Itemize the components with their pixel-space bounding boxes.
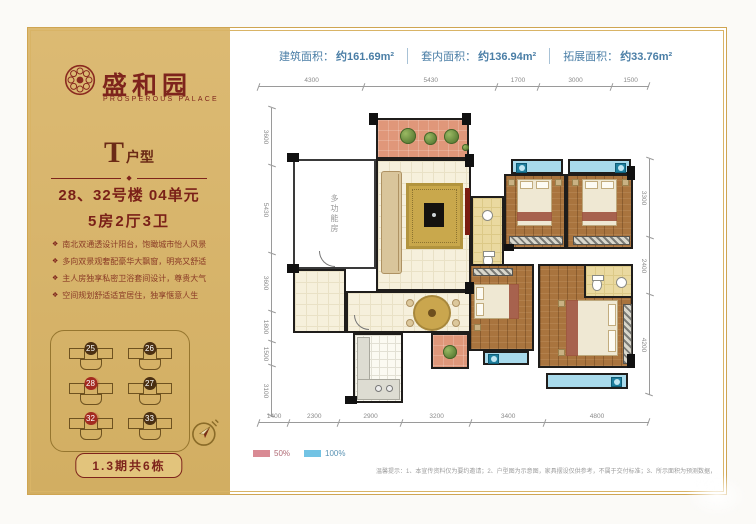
dimension-segment: 3400 [471, 422, 545, 428]
disclaimer-text: 温馨提示：1、本宣传资料仅为要约邀请；2、户型图为示意图，家具摆设仅供参考，不属… [376, 466, 714, 475]
balcony-master [546, 373, 628, 389]
floor-plan: 多功能房 [257, 96, 649, 428]
building-number-badge: 26 [143, 342, 156, 355]
legend-swatch [253, 450, 270, 457]
compass-icon [190, 418, 220, 448]
feature-text: 主人房独享私密卫浴套间设计，尊贵大气 [62, 274, 206, 284]
feature-item: ❖ 南北双通透设计阳台，饱瞰城市怡人风景 [52, 240, 212, 250]
dimension-segment: 4800 [545, 422, 649, 428]
dimension-segment: 1500 [612, 86, 649, 92]
dimension-label: 4200 [640, 338, 647, 352]
diamond-bullet-icon: ❖ [52, 240, 58, 250]
dimension-segment: 2400 [649, 238, 655, 295]
brand-name-en: PROSPEROUS PALACE [103, 96, 219, 103]
unit-type-letter: T [104, 136, 124, 169]
feature-text: 空间规划舒适适宜居住，独享惬意人生 [62, 291, 198, 301]
area-segment: 建筑面积：约161.69m² [266, 48, 407, 64]
legend-item: 100% [304, 449, 345, 458]
dimension-label: 5430 [424, 77, 438, 84]
building-wing-right [97, 418, 113, 429]
site-building[interactable]: 32 [68, 412, 114, 440]
area-value: 约136.94m² [478, 51, 536, 63]
building-number-badge: 33 [143, 412, 156, 425]
balcony-bedroom2 [568, 159, 631, 174]
area-value: 约33.76m² [620, 51, 672, 63]
dimension-segment: 3600 [271, 108, 277, 166]
dimension-segment: 1500 [271, 342, 277, 366]
building-base [80, 394, 102, 405]
area-label: 套内面积： [421, 51, 476, 63]
feature-item: ❖ 多向双景观奢配豪华大飘窗，明亮又舒适 [52, 257, 212, 267]
terrace-garden [376, 118, 469, 159]
site-building[interactable]: 33 [127, 412, 173, 440]
phase-badge-button[interactable]: 1.3期共6栋 [75, 453, 182, 478]
building-number-badge: 32 [84, 412, 97, 425]
dimension-segment: 2900 [339, 422, 402, 428]
building-base [139, 359, 161, 370]
site-plan-map: 25 26 28 [50, 330, 190, 452]
unit-type-suffix: 户型 [126, 149, 154, 165]
dimension-segment: 2300 [289, 422, 339, 428]
dimension-segment: 3600 [271, 254, 277, 312]
building-wing-right [156, 418, 172, 429]
watermark [686, 474, 748, 518]
multifunction-room: 多功能房 [293, 159, 376, 269]
dimension-label: 3600 [262, 276, 269, 290]
dimension-chain-left: 360054303600180015003100 [271, 108, 277, 416]
diamond-icon: ◆ [121, 174, 136, 182]
area-label: 建筑面积： [279, 51, 334, 63]
dimension-label: 3000 [568, 77, 582, 84]
room-count-line: 5房2厅3卫 [28, 210, 230, 231]
building-number-badge: 28 [84, 377, 97, 390]
bedroom-2 [566, 174, 633, 249]
building-wing-right [156, 383, 172, 394]
dimension-label: 3200 [429, 413, 443, 420]
site-building[interactable]: 25 [68, 342, 114, 370]
area-legend: 50% 100% [253, 449, 345, 458]
building-wing-left [128, 348, 144, 359]
building-base [139, 429, 161, 440]
dimension-chain-bottom: 140023002900320034004800 [259, 422, 649, 428]
dimension-label: 2400 [640, 259, 647, 273]
dimension-segment: 4300 [259, 86, 364, 92]
area-segment: 拓展面积：约33.76m² [549, 48, 685, 64]
building-number-badge: 25 [84, 342, 97, 355]
dimension-segment: 1800 [271, 312, 277, 341]
legend-item: 50% [253, 449, 290, 458]
feature-text: 南北双通透设计阳台，饱瞰城市怡人风景 [62, 240, 206, 250]
area-label: 拓展面积： [563, 51, 618, 63]
dimension-segment: 3100 [271, 366, 277, 416]
area-value: 约161.69m² [336, 51, 394, 63]
balcony-bedroom1 [511, 159, 563, 174]
dimension-label: 2300 [307, 413, 321, 420]
site-building[interactable]: 28 [68, 377, 114, 405]
building-unit-line: 28、32号楼 04单元 [28, 184, 230, 205]
building-wing-right [97, 383, 113, 394]
balcony-bedroom3 [483, 351, 529, 365]
feature-text: 多向双景观奢配豪华大飘窗，明亮又舒适 [62, 257, 206, 267]
dimension-label: 4300 [304, 77, 318, 84]
building-wing-left [69, 418, 85, 429]
site-building[interactable]: 26 [127, 342, 173, 370]
sidebar: 盛和园 PROSPEROUS PALACE T户型 ◆ 28、32号楼 04单元… [28, 28, 230, 494]
diamond-bullet-icon: ❖ [52, 274, 58, 284]
brochure-card: 盛和园 PROSPEROUS PALACE T户型 ◆ 28、32号楼 04单元… [27, 27, 727, 495]
area-segment: 套内面积：约136.94m² [407, 48, 549, 64]
service-balcony [431, 333, 469, 369]
dining-room [346, 291, 471, 333]
dimension-segment: 3300 [649, 159, 655, 238]
dimension-label: 3400 [501, 413, 515, 420]
building-base [139, 394, 161, 405]
unit-type-title: T户型 [28, 136, 230, 170]
dimension-label: 5430 [262, 203, 269, 217]
feature-item: ❖ 空间规划舒适适宜居住，独享惬意人生 [52, 291, 212, 301]
bathroom-master [584, 264, 633, 298]
brand-seal-icon [64, 64, 96, 96]
bedroom-3 [469, 264, 534, 351]
dimension-segment: 1700 [497, 86, 539, 92]
diamond-bullet-icon: ❖ [52, 257, 58, 267]
feature-list: ❖ 南北双通透设计阳台，饱瞰城市怡人风景 ❖ 多向双景观奢配豪华大飘窗，明亮又舒… [52, 240, 212, 308]
building-wing-left [69, 348, 85, 359]
dimension-segment: 3000 [539, 86, 612, 92]
building-base [80, 359, 102, 370]
dimension-segment: 1400 [259, 422, 289, 428]
dimension-label: 3600 [262, 130, 269, 144]
dimension-label: 3300 [640, 191, 647, 205]
dimension-chain-top: 43005430170030001500 [259, 86, 649, 92]
building-wing-left [69, 383, 85, 394]
building-base [80, 429, 102, 440]
dimension-label: 1800 [262, 320, 269, 334]
dimension-label: 1500 [262, 346, 269, 360]
building-wing-right [97, 348, 113, 359]
area-summary-banner: 建筑面积：约161.69m² 套内面积：约136.94m² 拓展面积：约33.7… [266, 48, 685, 64]
diamond-bullet-icon: ❖ [52, 291, 58, 301]
dimension-segment: 5430 [271, 166, 277, 254]
legend-label: 50% [274, 449, 290, 458]
site-building[interactable]: 27 [127, 377, 173, 405]
bedroom-1 [504, 174, 566, 249]
dimension-segment: 3200 [402, 422, 471, 428]
building-wing-left [128, 383, 144, 394]
legend-swatch [304, 450, 321, 457]
dimension-label: 2900 [363, 413, 377, 420]
legend-label: 100% [325, 449, 345, 458]
feature-item: ❖ 主人房独享私密卫浴套间设计，尊贵大气 [52, 274, 212, 284]
ornament-divider: ◆ [51, 174, 207, 182]
hallway [293, 269, 346, 333]
dimension-label: 1500 [623, 77, 637, 84]
room-label: 多功能房 [329, 194, 340, 234]
kitchen [353, 333, 403, 403]
dimension-label: 4800 [590, 413, 604, 420]
dimension-label: 1700 [511, 77, 525, 84]
dimension-label: 3100 [262, 384, 269, 398]
living-room [376, 159, 471, 291]
building-number-badge: 27 [143, 377, 156, 390]
building-wing-right [156, 348, 172, 359]
dimension-segment: 5430 [364, 86, 497, 92]
building-wing-left [128, 418, 144, 429]
dimension-chain-right: 330024004200 [649, 159, 655, 395]
dimension-segment: 4200 [649, 295, 655, 395]
